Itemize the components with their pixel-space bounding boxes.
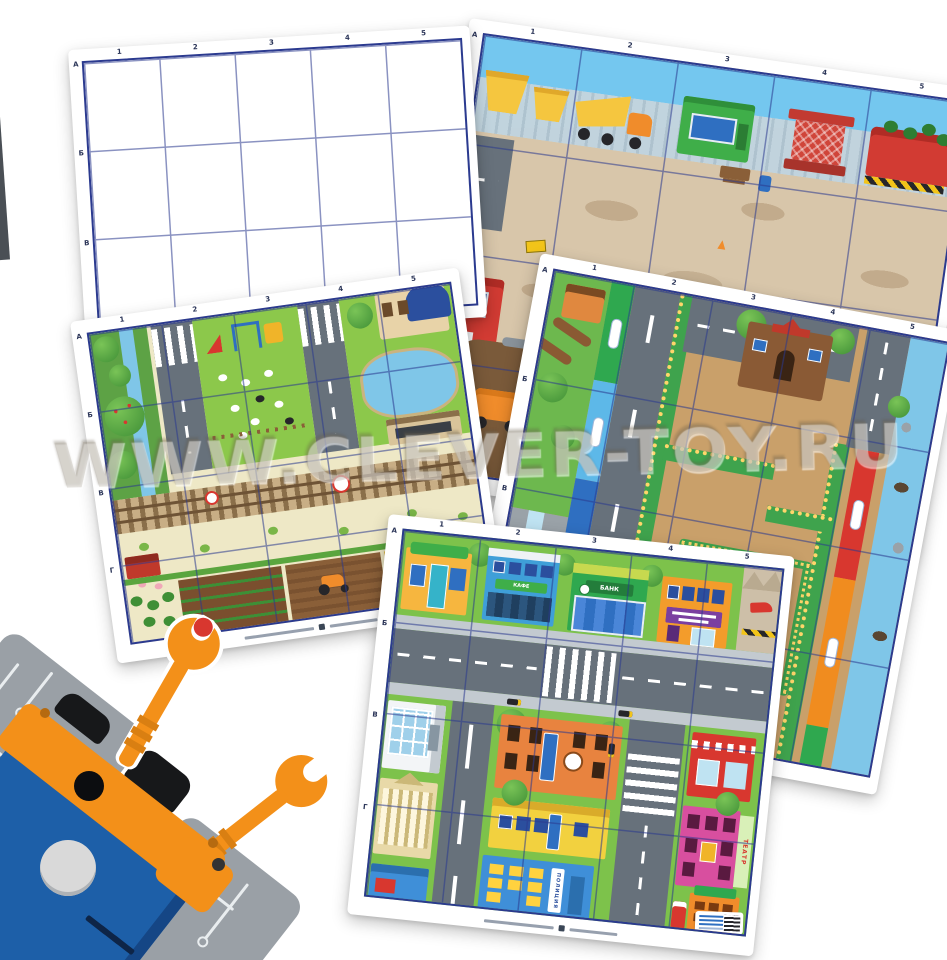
crosswalk bbox=[297, 303, 344, 346]
wrench-arm bbox=[163, 737, 344, 898]
city-art: КАФЕ БАНК bbox=[364, 528, 785, 936]
bank-building: БАНК bbox=[567, 563, 650, 639]
estate-house bbox=[374, 285, 450, 340]
city-mat: 12345 АБВГ КАФЕ bbox=[347, 514, 795, 956]
circuit-panel bbox=[84, 812, 307, 960]
robot-ear bbox=[122, 745, 195, 815]
red-store bbox=[686, 732, 756, 802]
mat-edge-sliver bbox=[0, 88, 10, 260]
shop-building bbox=[400, 547, 472, 616]
cafe-building: КАФЕ bbox=[482, 548, 561, 627]
pharmacy-building bbox=[381, 700, 446, 774]
kindergarten-building bbox=[488, 797, 611, 859]
clock bbox=[562, 751, 584, 773]
dirt-corner bbox=[736, 566, 785, 654]
vegetable-field bbox=[178, 566, 289, 639]
school-sign bbox=[539, 732, 559, 781]
police-building: ПОЛИЦИЯ bbox=[477, 855, 594, 922]
bolt bbox=[208, 838, 218, 848]
vent bbox=[85, 915, 109, 936]
camera-lens bbox=[74, 771, 104, 801]
theater-building bbox=[675, 805, 741, 891]
police-sign: ПОЛИЦИЯ bbox=[552, 872, 561, 909]
bolt bbox=[40, 708, 50, 718]
theater-sign: ТЕАТР bbox=[739, 839, 748, 866]
product-image: 12345 АБВ 12345 АБВГ bbox=[0, 0, 947, 960]
museum-building bbox=[372, 778, 438, 860]
vent bbox=[111, 935, 135, 956]
qr-code bbox=[724, 915, 741, 932]
bush-row bbox=[130, 596, 143, 608]
power-button bbox=[40, 840, 96, 896]
kindergarten-sign bbox=[546, 813, 563, 850]
circuit-panel bbox=[0, 628, 150, 897]
site-container bbox=[676, 96, 755, 163]
crosswalk bbox=[151, 324, 198, 367]
bank-sign: БАНК bbox=[600, 584, 620, 593]
qr-card bbox=[695, 911, 744, 935]
cafe-sign: КАФЕ bbox=[513, 582, 530, 590]
meadow-bushes bbox=[139, 542, 150, 551]
robot-head-band bbox=[0, 700, 229, 900]
traffic-cone bbox=[717, 240, 726, 250]
yellow-sign bbox=[525, 240, 546, 253]
crosswalk bbox=[622, 753, 680, 816]
fire-truck bbox=[670, 901, 687, 930]
scissor-lift bbox=[781, 108, 855, 181]
vent bbox=[98, 925, 122, 946]
shed bbox=[561, 283, 607, 324]
service-building bbox=[656, 576, 733, 649]
robot-ear bbox=[53, 688, 116, 746]
park-entrance bbox=[737, 321, 834, 402]
arm-joint-plate bbox=[152, 833, 237, 916]
strip-green2 bbox=[799, 724, 828, 770]
joint-bolt bbox=[212, 858, 225, 871]
blue-shop bbox=[368, 863, 429, 905]
crosswalk bbox=[542, 646, 617, 703]
wheelbarrow bbox=[750, 602, 772, 613]
robot-body bbox=[0, 714, 219, 960]
